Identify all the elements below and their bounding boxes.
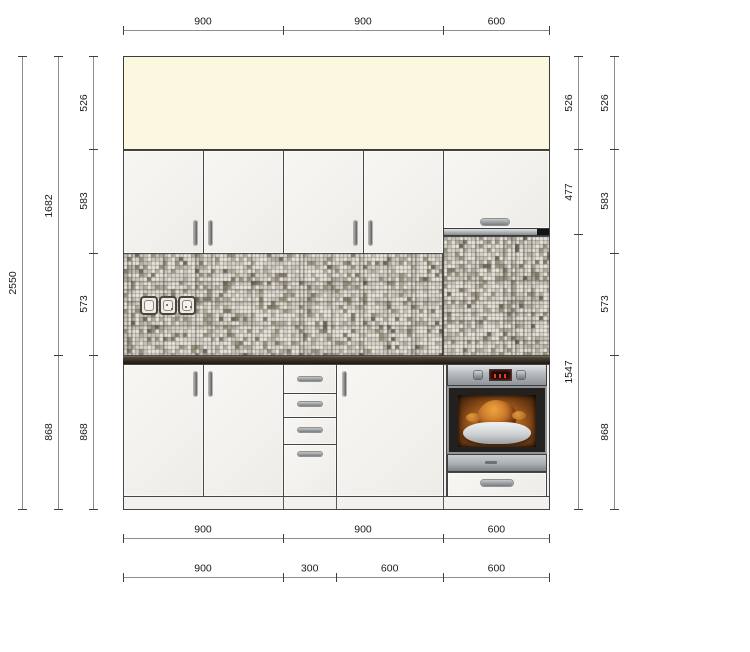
dimension-label: 900	[194, 564, 212, 575]
under-cabinet-light-strip	[443, 228, 549, 236]
wall-cabinet-door-3	[283, 150, 364, 254]
base-cabinet-handle-3	[343, 372, 346, 396]
oven-knob-left	[474, 371, 482, 379]
power-outlet-1	[140, 296, 158, 315]
plinth-seam-2	[336, 497, 337, 509]
dimension-label: 300	[301, 564, 319, 575]
dimension-line	[614, 56, 615, 509]
dimension-label: 900	[354, 17, 372, 28]
dimension-tick	[610, 509, 619, 510]
base-cabinet-handle-2	[209, 372, 212, 396]
dimension-line	[22, 56, 23, 509]
dimension-tick	[574, 234, 583, 235]
dimension-label: 583	[79, 193, 90, 211]
dimension-tick	[283, 26, 284, 35]
dimension-label: 600	[381, 564, 399, 575]
oven-lower-panel	[447, 454, 547, 472]
dimension-tick	[549, 573, 550, 582]
dimension-label: 1682	[44, 194, 55, 217]
plinth-seam-1	[283, 497, 284, 509]
oven-window	[447, 386, 547, 454]
dimension-tick	[443, 573, 444, 582]
dimension-label: 583	[600, 193, 611, 211]
dimension-tick	[549, 26, 550, 35]
dimension-tick	[89, 149, 98, 150]
wall-cabinet-handle-above-oven	[481, 219, 509, 225]
dimension-tick	[283, 573, 284, 582]
dimension-line	[58, 56, 59, 509]
oven-drawer-handle	[481, 480, 513, 486]
oven-display	[489, 369, 512, 381]
dimension-label: 573	[79, 295, 90, 313]
roast-wing-left	[466, 413, 480, 422]
wall-cabinet-handle-1	[194, 221, 197, 245]
dimension-tick	[610, 56, 619, 57]
dimension-label: 900	[354, 525, 372, 536]
wall-cabinet-door-above-oven	[443, 150, 550, 229]
dimension-label: 900	[194, 525, 212, 536]
dimension-tick	[89, 355, 98, 356]
wall-cabinet-door-1	[123, 150, 204, 254]
dimension-line	[93, 56, 94, 509]
dimension-tick	[610, 355, 619, 356]
dimension-label: 900	[194, 17, 212, 28]
countertop	[123, 356, 550, 364]
drawer-handle-2	[298, 402, 322, 406]
dimension-label: 477	[564, 183, 575, 201]
dimension-label: 868	[600, 423, 611, 441]
dimension-line	[578, 56, 579, 509]
wall-cabinet-handle-4	[369, 221, 372, 245]
dimension-tick	[610, 149, 619, 150]
dimension-tick	[123, 573, 124, 582]
dimension-tick	[574, 56, 583, 57]
dimension-tick	[54, 56, 63, 57]
wall-cabinet-door-2	[203, 150, 284, 254]
wall-cabinet-door-4	[363, 150, 444, 254]
dimension-label: 526	[564, 94, 575, 112]
drawer-handle-1	[298, 377, 322, 381]
dimension-label: 868	[44, 423, 55, 441]
dimension-tick	[443, 534, 444, 543]
dimension-label: 600	[488, 17, 506, 28]
dimension-tick	[610, 253, 619, 254]
dimension-tick	[89, 509, 98, 510]
dimension-label: 600	[488, 525, 506, 536]
drawer-handle-4	[298, 452, 322, 456]
base-cabinet-handle-1	[194, 372, 197, 396]
power-outlet-2	[159, 296, 177, 315]
dimension-tick	[123, 534, 124, 543]
dimension-label: 2550	[8, 271, 19, 294]
light-strip-end-cap	[537, 229, 549, 235]
base-cabinet-door-3	[336, 364, 444, 497]
dimension-label: 868	[79, 423, 90, 441]
dimension-label: 573	[600, 295, 611, 313]
dimension-label: 1547	[564, 360, 575, 383]
roasting-dish	[463, 422, 531, 444]
dimension-tick	[549, 534, 550, 543]
dimension-line	[123, 538, 550, 539]
kitchen-elevation-drawing: 9009006009009006009003006006002550168286…	[0, 0, 750, 652]
base-cabinet-door-2	[203, 364, 284, 497]
dimension-tick	[443, 26, 444, 35]
dimension-tick	[336, 573, 337, 582]
wall-cabinet-handle-3	[354, 221, 357, 245]
dimension-tick	[283, 534, 284, 543]
dimension-line	[123, 30, 550, 31]
dimension-tick	[18, 56, 27, 57]
dimension-tick	[18, 509, 27, 510]
dimension-tick	[574, 149, 583, 150]
oven-knob-right	[517, 371, 525, 379]
dimension-tick	[54, 509, 63, 510]
tile-backsplash-right	[443, 236, 550, 356]
roast-wing-right	[512, 411, 526, 420]
base-cabinet-door-1	[123, 364, 204, 497]
wall-band	[123, 56, 550, 150]
dimension-tick	[89, 253, 98, 254]
plinth-seam-3	[443, 497, 444, 509]
oven-display-digits	[494, 374, 508, 378]
dimension-tick	[123, 26, 124, 35]
oven-brand-mark	[485, 461, 497, 464]
oven-interior	[458, 395, 536, 447]
dimension-tick	[89, 56, 98, 57]
dimension-label: 526	[600, 94, 611, 112]
dimension-label: 600	[488, 564, 506, 575]
wall-cabinet-handle-2	[209, 221, 212, 245]
dimension-tick	[574, 509, 583, 510]
dimension-label: 526	[79, 94, 90, 112]
dimension-tick	[54, 355, 63, 356]
power-outlet-3	[178, 296, 196, 315]
drawer-handle-3	[298, 428, 322, 432]
